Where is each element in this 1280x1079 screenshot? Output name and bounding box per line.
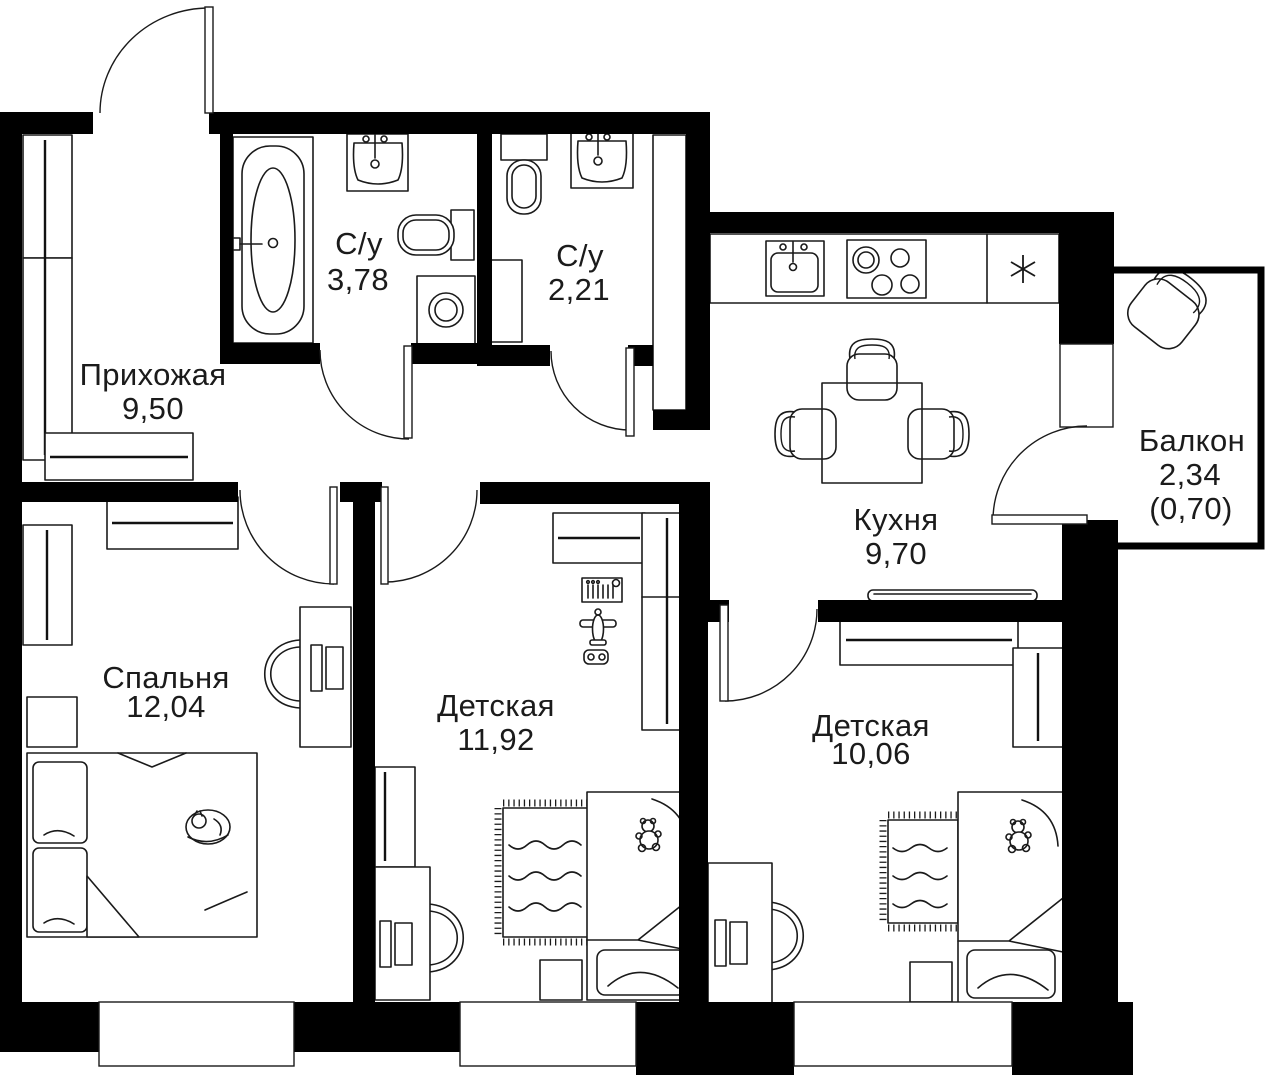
room-area-coeff-balcony: (0,70): [1149, 491, 1232, 526]
double-bed: [27, 753, 257, 937]
nursery2-rug: [883, 815, 958, 928]
dining-set: [775, 339, 969, 483]
sink: [347, 134, 408, 191]
nightstand: [910, 962, 952, 1002]
nursery1-desk: [375, 867, 463, 1000]
room-label-nursery1: Детская: [437, 688, 555, 723]
toy-plane: [580, 609, 616, 645]
cat: [186, 810, 230, 844]
floor-plan: Прихожая 9,50 С/у 3,78 С/у 2,21 Кухня 9,…: [0, 0, 1280, 1079]
bathroom-large-door: [320, 346, 412, 439]
sink-small: [571, 132, 633, 188]
toys: [580, 578, 622, 664]
room-label-bathroom-small: С/у: [556, 238, 604, 273]
bedroom-wardrobes: [23, 497, 238, 645]
room-area-balcony: 2,34: [1159, 457, 1221, 492]
bathtub: [233, 137, 313, 343]
stove: [847, 240, 926, 298]
room-label-bathroom-large: С/у: [335, 226, 383, 261]
vent-shaft-large: [653, 135, 686, 410]
toilet: [398, 210, 474, 260]
bedroom-desk: [265, 607, 351, 747]
room-area-hallway: 9,50: [122, 391, 184, 426]
toy-piano: [582, 578, 622, 602]
nursery1-rug: [498, 803, 590, 942]
radiator: [868, 590, 1037, 601]
room-label-kitchen: Кухня: [854, 502, 939, 537]
nursery1-door: [381, 487, 477, 584]
room-area-bathroom-large: 3,78: [327, 262, 389, 297]
room-label-hallway: Прихожая: [80, 357, 227, 392]
washing-machine: [417, 276, 475, 344]
entrance-door: [100, 7, 213, 113]
room-area-nursery2: 10,06: [831, 736, 911, 771]
room-area-nursery1: 11,92: [457, 722, 534, 757]
room-area-kitchen: 9,70: [865, 536, 927, 571]
floor-plan-page: Прихожая 9,50 С/у 3,78 С/у 2,21 Кухня 9,…: [0, 0, 1280, 1079]
nursery2-door: [720, 605, 817, 701]
windows: [99, 1002, 1012, 1066]
nursery2-window: [794, 1002, 1012, 1066]
nightstand: [540, 960, 582, 1000]
toilet-small: [501, 134, 547, 214]
kitchen-sink: [766, 241, 824, 296]
room-label-balcony: Балкон: [1139, 423, 1245, 458]
nursery1-window: [460, 1002, 636, 1066]
balcony-door: [992, 344, 1113, 524]
nursery1-bed: [587, 792, 692, 1000]
hallway-wardrobes: [23, 135, 193, 480]
room-area-bathroom-small: 2,21: [548, 272, 610, 307]
nursery2-desk: [708, 863, 803, 1003]
room-area-bedroom: 12,04: [126, 689, 206, 724]
vent-shaft-small: [488, 260, 522, 342]
nursery2-bed: [958, 792, 1063, 1003]
toy-car: [584, 650, 608, 664]
furniture-layer: [23, 132, 1216, 1003]
bedroom-window: [99, 1002, 294, 1066]
nightstand: [27, 697, 77, 747]
bedroom-door: [240, 487, 337, 584]
bathroom-small-door: [551, 348, 634, 436]
